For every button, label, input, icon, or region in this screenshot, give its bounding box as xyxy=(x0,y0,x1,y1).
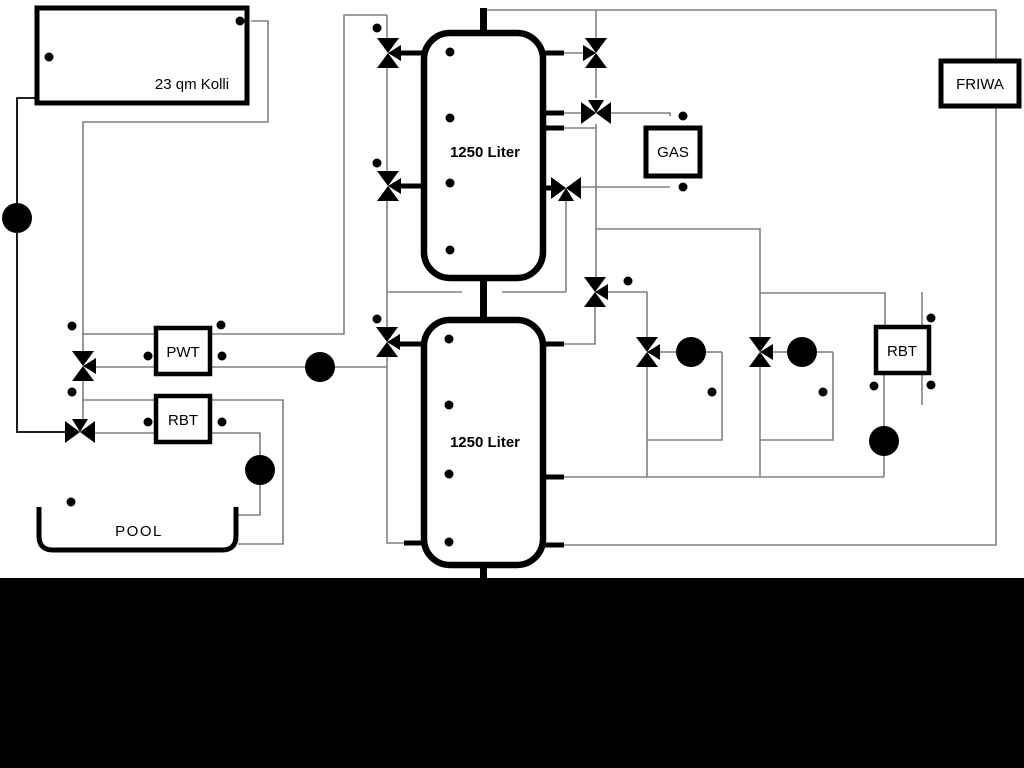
pwt-pump-icon xyxy=(305,352,335,382)
upper-tank-label: 1250 Liter xyxy=(450,144,520,161)
three-way-valve-icon xyxy=(72,351,96,381)
bottom-black-band xyxy=(0,578,1024,768)
three-way-valve-icon xyxy=(377,171,401,201)
heating-circuit-mixing-valve-icon xyxy=(749,337,773,367)
pwt-label: PWT xyxy=(166,344,199,361)
sensor-icon xyxy=(918,314,936,323)
lower-tank-label: 1250 Liter xyxy=(450,434,520,451)
hydraulic-schematic: 23 qm Kolli 1250 Liter 1250 Liter GAS FR… xyxy=(0,0,1024,768)
heating-circuit-pump-icon xyxy=(787,337,817,367)
pool-mixing-valve-icon xyxy=(65,419,95,443)
sensor-icon xyxy=(670,183,688,192)
three-way-valve-icon xyxy=(377,38,401,68)
pool-sensor-icon xyxy=(67,498,76,516)
pool-label: POOL xyxy=(115,523,163,540)
black-pipes xyxy=(17,98,65,432)
pool-pump-icon xyxy=(245,455,275,485)
heating-circuit-mixing-valve-icon xyxy=(636,337,660,367)
sensor-icon xyxy=(670,112,688,121)
solar-pump-icon xyxy=(2,203,32,233)
three-way-valve-icon xyxy=(376,327,400,357)
rbt-right-label: RBT xyxy=(887,343,917,360)
gas-return-valve-icon xyxy=(551,177,581,201)
three-way-valve-icon xyxy=(584,277,608,307)
mixing-valve-icon xyxy=(581,100,611,124)
sensor-icon xyxy=(217,321,226,339)
rbt-left-label: RBT xyxy=(168,412,198,429)
sensor-icon xyxy=(918,381,936,390)
collector-label: 23 qm Kolli xyxy=(155,76,229,93)
heating-circuit-pump-icon xyxy=(676,337,706,367)
gas-label: GAS xyxy=(657,144,689,161)
friwa-label: FRIWA xyxy=(956,76,1004,93)
schematic-canvas: 23 qm Kolli 1250 Liter 1250 Liter GAS FR… xyxy=(0,0,1024,768)
three-way-valve-icon xyxy=(583,38,607,68)
rbt-pump-icon xyxy=(869,426,899,456)
